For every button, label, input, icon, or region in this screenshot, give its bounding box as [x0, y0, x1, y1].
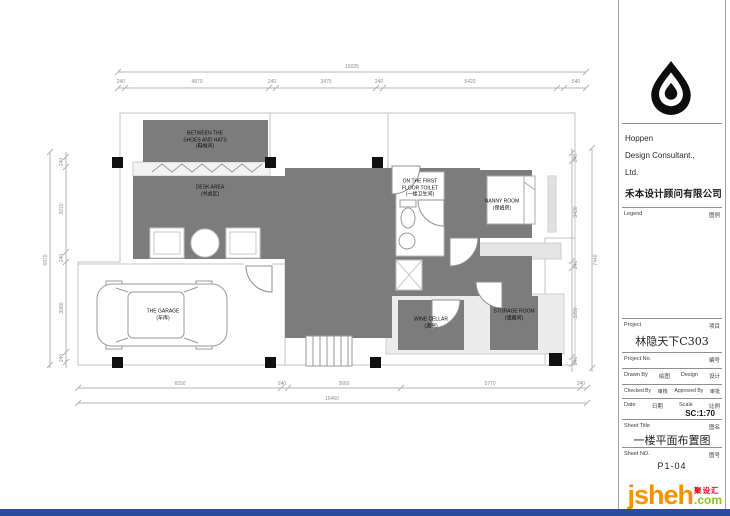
- dim-top-0: 240: [117, 79, 125, 85]
- approved-by-label: Approved By: [675, 388, 704, 395]
- dim-right-1: 3430: [573, 206, 579, 217]
- divider: [622, 447, 722, 448]
- room-label-wine-cellar: WINE CELLAR (酒窖): [414, 317, 448, 330]
- divider: [622, 419, 722, 420]
- room-label-desk-area: DESK AREA (书桌区): [196, 185, 224, 198]
- divider: [622, 368, 722, 369]
- dim-top-2: 240: [268, 79, 276, 85]
- dim-right-0: 240: [573, 154, 579, 162]
- dim-left-3: 3080: [59, 302, 65, 313]
- sheet-no: P1-04: [619, 461, 725, 471]
- sheet-no-label-cn: 图号: [709, 451, 720, 459]
- dim-right-4: 240: [573, 357, 579, 365]
- brand-name-line3: Ltd.: [625, 164, 638, 181]
- checked-by-label: Checked By: [624, 388, 651, 395]
- sheet-title-row: Sheet Title 图名: [624, 423, 720, 431]
- legend-label: Legend: [624, 211, 642, 219]
- dim-top-4: 240: [375, 79, 383, 85]
- dim-top-total: 15025: [345, 64, 359, 70]
- dim-right-total: 7440: [593, 254, 599, 265]
- sheet-title-label: Sheet Title: [624, 423, 650, 431]
- title-block: Hoppen Design Consultant., Ltd. 禾本设计顾问有限…: [618, 0, 726, 509]
- divider: [622, 207, 722, 208]
- divider: [622, 398, 722, 399]
- design-label-cn: 设计: [709, 372, 720, 380]
- dim-right-2: 240: [573, 261, 579, 269]
- approved-by-label-cn: 审批: [710, 388, 720, 395]
- brand-name-cn: 禾本设计顾问有限公司: [625, 186, 722, 200]
- jsheh-tld: .com: [694, 495, 722, 506]
- hoppen-drop-logo: [645, 48, 697, 128]
- dim-left-1: 3070: [59, 203, 65, 214]
- dim-bottom-3: 5770: [484, 381, 495, 387]
- footer-bar: [0, 509, 730, 516]
- dim-bottom-total: 16460: [325, 396, 339, 402]
- jsheh-wordmark: jsheh: [627, 484, 693, 506]
- sheet-title: 一楼平面布置图: [619, 432, 725, 448]
- dim-left-2: 240: [59, 254, 65, 262]
- project-name: 林隐天下C303: [619, 333, 725, 349]
- scale-value: SC:1:70: [685, 409, 715, 418]
- project-no-label: Project No.: [624, 356, 651, 364]
- legend-label-cn: 图例: [709, 211, 720, 219]
- project-label-cn: 项目: [709, 322, 720, 330]
- dim-bottom-0: 6550: [174, 381, 185, 387]
- seating-icons: [150, 228, 260, 258]
- room-label-garage: THE GARAGE (车库): [147, 309, 180, 322]
- brand-name-line1: Hoppen: [625, 130, 653, 147]
- sheet-no-row: Sheet NO. 图号: [624, 451, 720, 459]
- legend-row: Legend 图例: [624, 211, 720, 219]
- drawing-sheet: BETWEEN THESHOES AND HATS (鞋帽间) DESK ARE…: [0, 0, 730, 516]
- dim-top-6: 540: [572, 79, 580, 85]
- dim-top-1: 4870: [191, 79, 202, 85]
- jsheh-watermark[interactable]: jsheh 聚设汇 .com: [627, 484, 722, 506]
- project-no-label-cn: 编号: [709, 356, 720, 364]
- room-label-storage-room: STORAGE ROOM (储藏间): [493, 309, 534, 322]
- checked-by-label-cn: 审核: [658, 388, 668, 395]
- room-label-closet: BETWEEN THESHOES AND HATS (鞋帽间): [183, 130, 227, 150]
- toilet-fixture-icon: [400, 200, 416, 228]
- sheet-no-label: Sheet NO.: [624, 451, 650, 459]
- drawn-by-label-cn: 绘图: [659, 372, 670, 380]
- dim-bottom-2: 3660: [338, 381, 349, 387]
- dim-bottom-1: 240: [278, 381, 286, 387]
- date-label-cn: 日期: [652, 402, 663, 410]
- sink-icon: [399, 233, 415, 249]
- sheet-title-label-cn: 图名: [709, 423, 720, 431]
- project-label: Project: [624, 322, 641, 330]
- project-no-row: Project No. 编号: [624, 356, 720, 364]
- dim-top-3: 3475: [320, 79, 331, 85]
- stairs-icon: [306, 336, 352, 366]
- dim-top-5: 5420: [464, 79, 475, 85]
- room-label-nanny-room: NANNY ROOM (保姆房): [485, 199, 519, 212]
- date-label: Date: [624, 402, 636, 410]
- dim-left-4: 240: [59, 354, 65, 362]
- divider: [622, 352, 722, 353]
- dim-bottom-4: 240: [577, 381, 585, 387]
- divider: [622, 318, 722, 319]
- room-label-toilet: ON THE FIRSTFLOOR TOILET (一楼卫生间): [402, 178, 438, 198]
- drawn-by-label: Drawn By: [624, 372, 648, 380]
- dim-left-0: 240: [59, 158, 65, 166]
- dim-right-3: 3290: [573, 307, 579, 318]
- divider: [622, 123, 722, 124]
- design-label: Design: [681, 372, 698, 380]
- checked-approved-row: Checked By 审核 Approved By 审批: [624, 388, 720, 395]
- divider: [622, 384, 722, 385]
- drawn-design-row: Drawn By 绘图 Design 设计: [624, 372, 720, 380]
- brand-name-line2: Design Consultant.,: [625, 147, 695, 164]
- dim-left-total: 6870: [43, 254, 49, 265]
- project-row: Project 项目: [624, 322, 720, 330]
